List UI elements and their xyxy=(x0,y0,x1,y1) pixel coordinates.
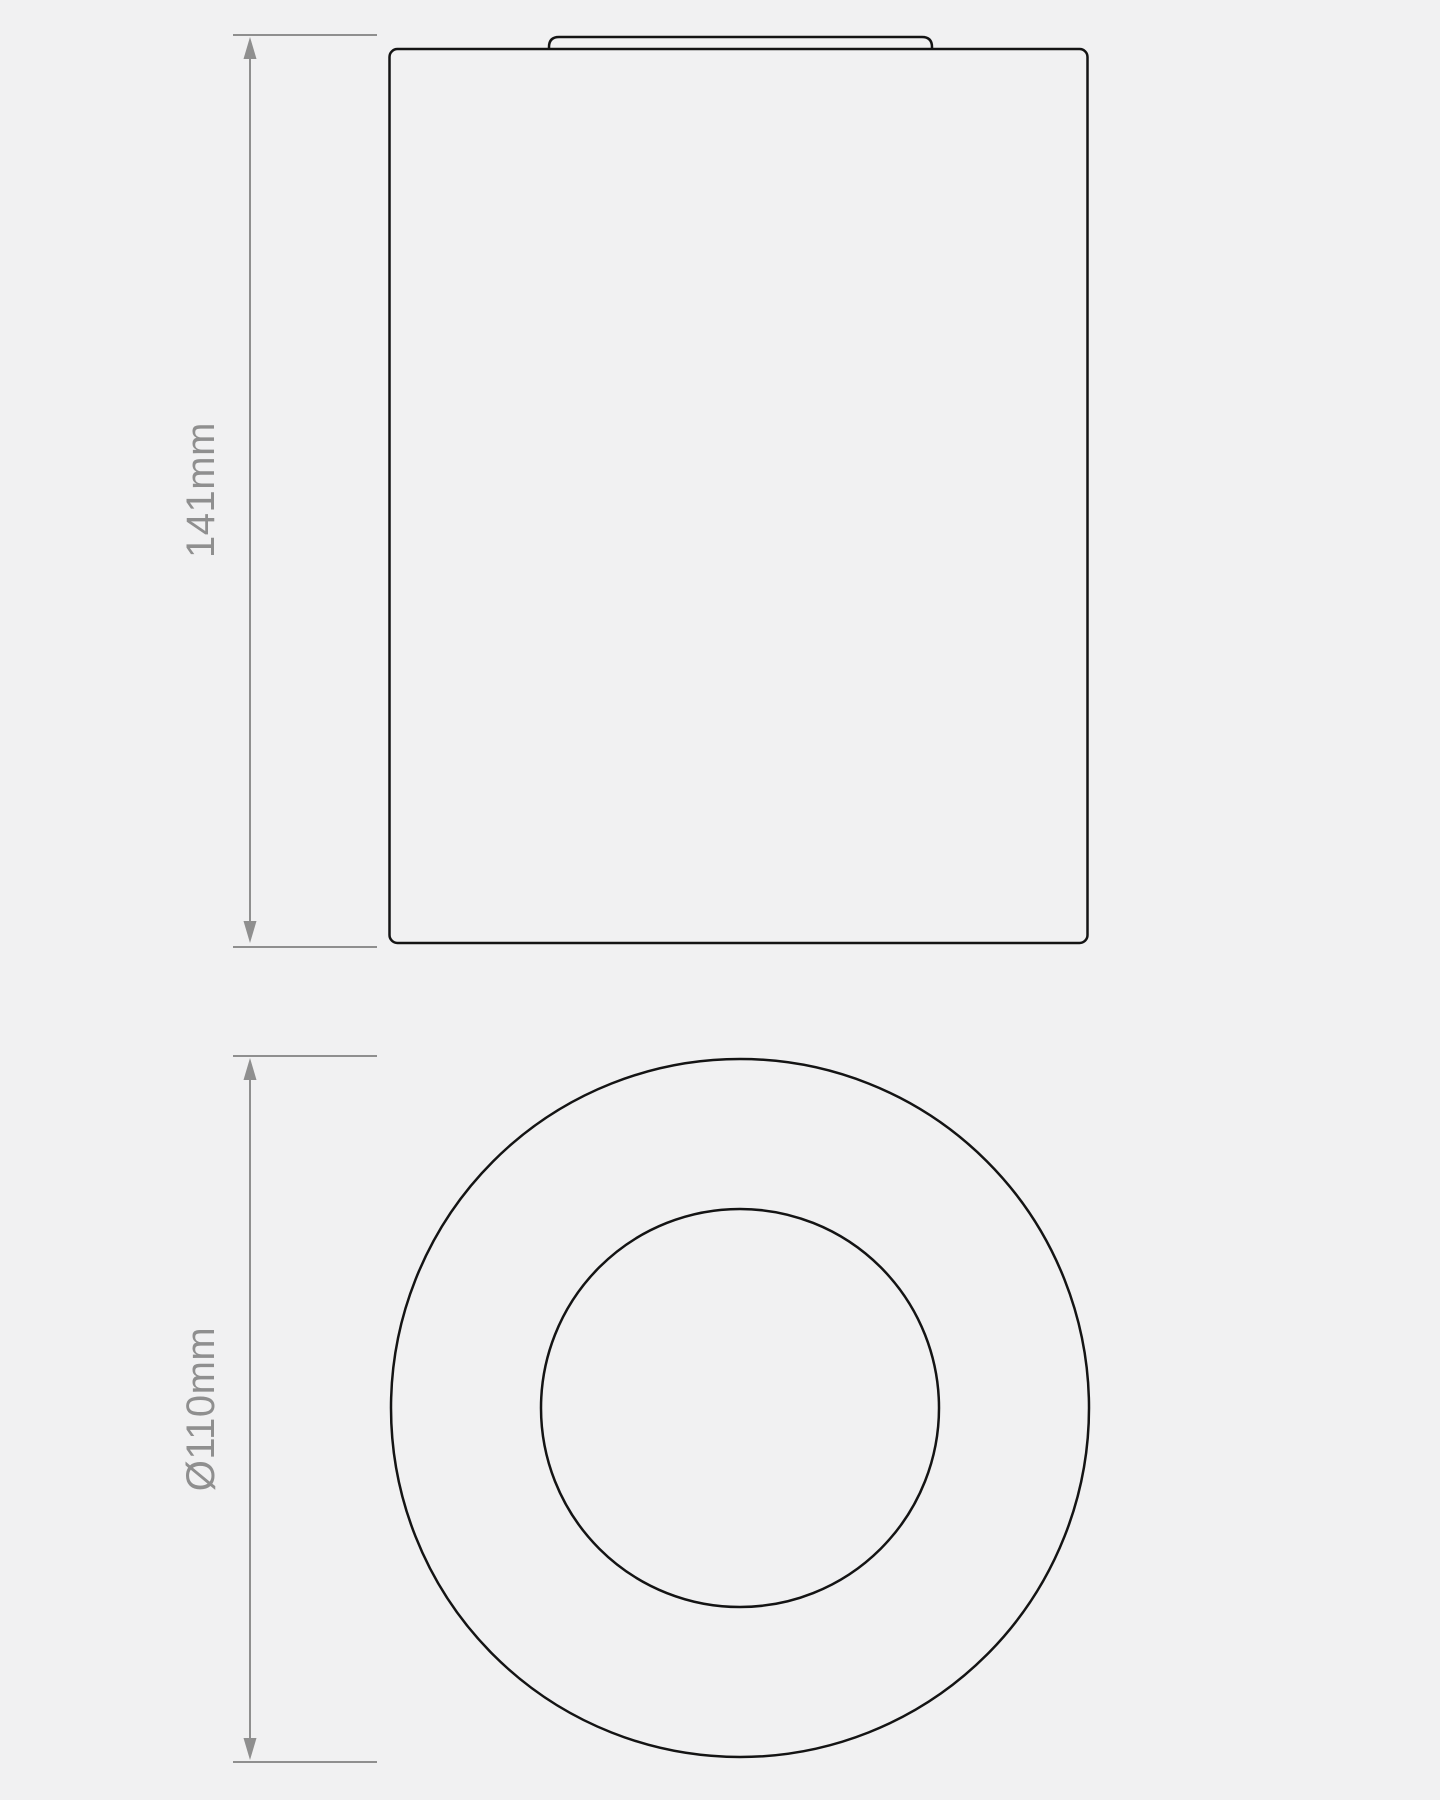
plan-view: Ø110mm xyxy=(179,1056,1089,1762)
outer-circle-outline xyxy=(391,1059,1089,1757)
side-view: 141mm xyxy=(179,35,1088,947)
side-view-body-outline xyxy=(390,49,1088,943)
arrow-down-icon xyxy=(244,1738,257,1760)
height-dimension: 141mm xyxy=(179,35,377,947)
arrow-up-icon xyxy=(244,1058,257,1080)
height-dimension-label: 141mm xyxy=(179,422,223,558)
arrow-up-icon xyxy=(244,37,257,59)
diameter-dimension-label: Ø110mm xyxy=(179,1327,223,1492)
inner-circle-outline xyxy=(541,1209,939,1607)
drawing-canvas: 141mm Ø110mm xyxy=(0,0,1440,1800)
arrow-down-icon xyxy=(244,921,257,943)
dimension-drawing: 141mm Ø110mm xyxy=(0,0,1440,1800)
diameter-dimension: Ø110mm xyxy=(179,1056,377,1762)
